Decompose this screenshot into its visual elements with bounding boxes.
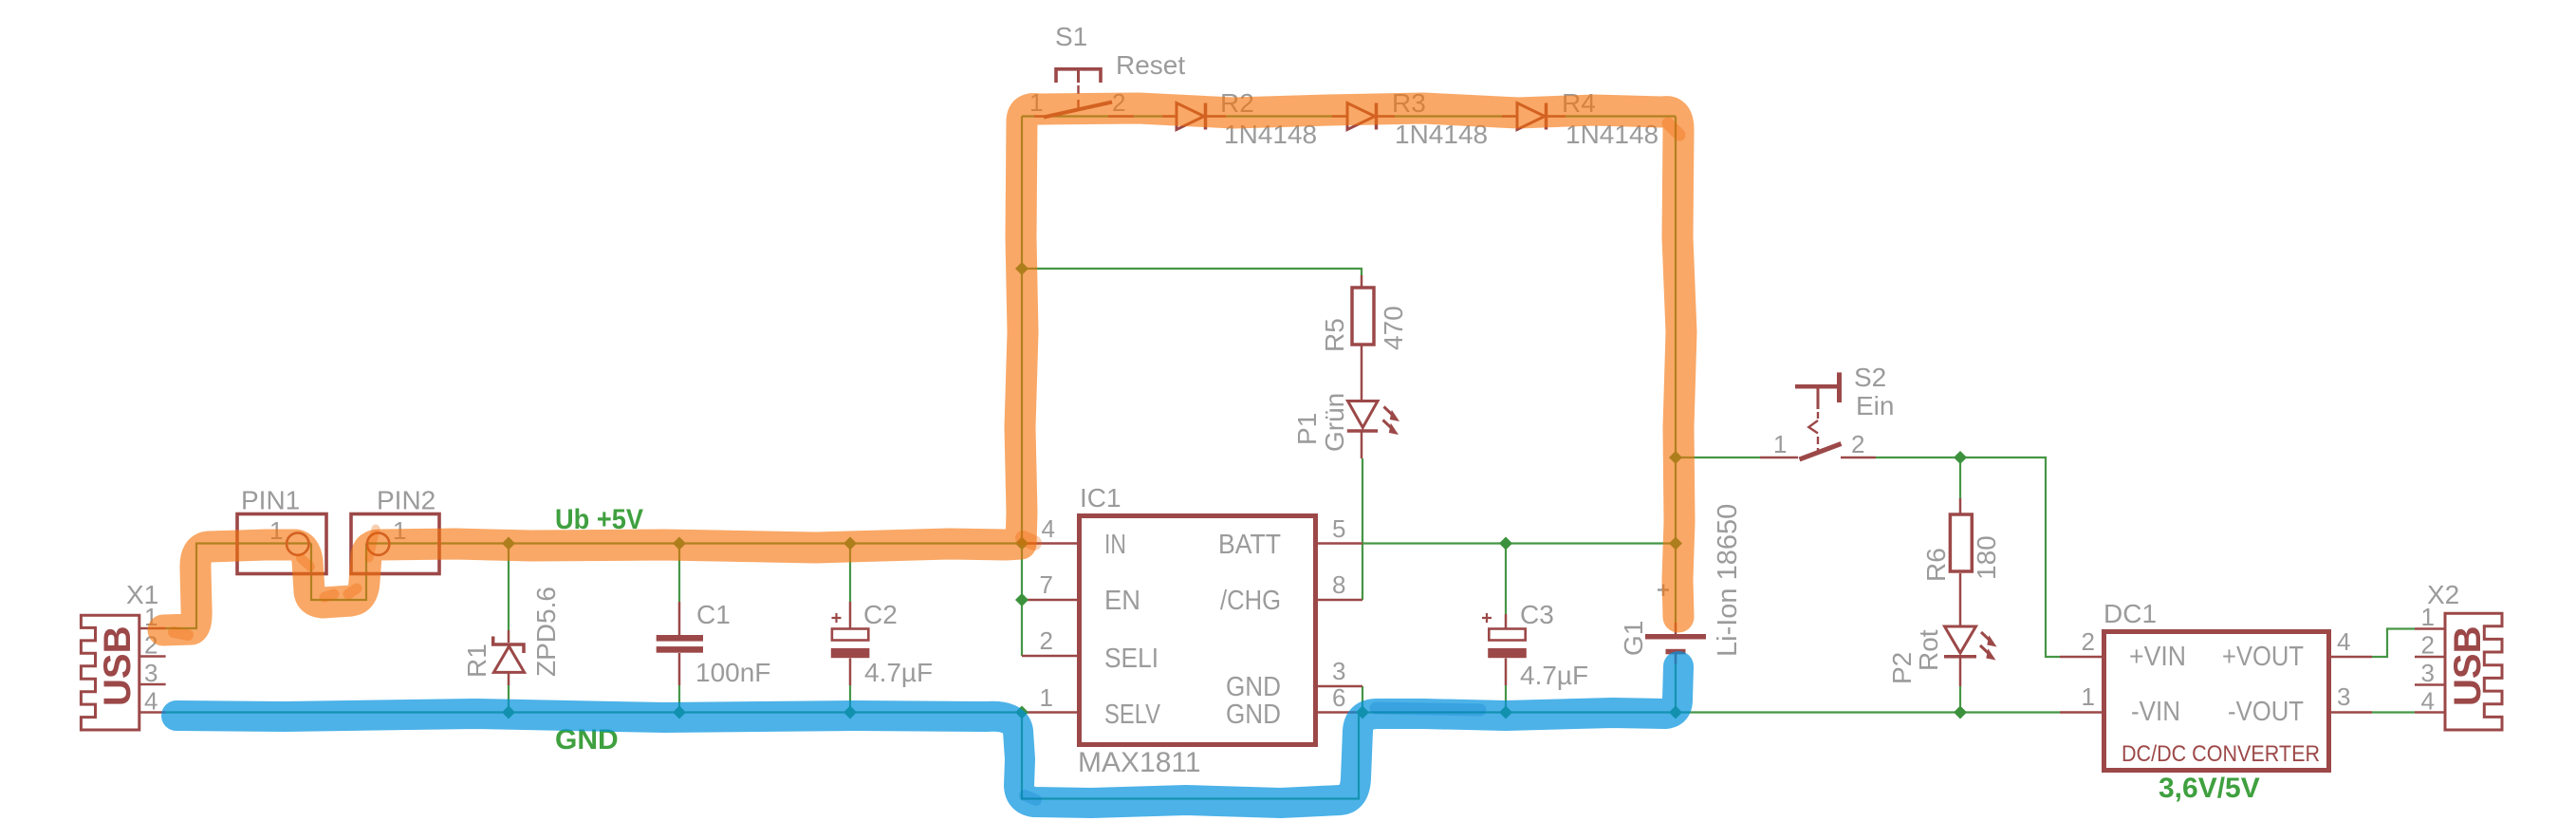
svg-text:-VOUT: -VOUT [2228, 697, 2304, 727]
svg-text:1: 1 [2421, 603, 2435, 631]
svg-text:7: 7 [1040, 570, 1053, 599]
svg-text:4.7µF: 4.7µF [1520, 661, 1588, 690]
svg-text:Reset: Reset [1116, 50, 1185, 80]
svg-text:BATT: BATT [1218, 530, 1281, 560]
svg-text:8: 8 [1332, 570, 1345, 599]
svg-text:GND: GND [1226, 672, 1281, 702]
svg-text:USB: USB [2447, 626, 2489, 706]
svg-text:R6: R6 [1921, 548, 1951, 582]
svg-text:3: 3 [2421, 659, 2435, 687]
svg-text:/CHG: /CHG [1220, 586, 1281, 616]
svg-text:3: 3 [1332, 657, 1345, 685]
svg-text:C2: C2 [863, 600, 898, 629]
svg-text:MAX1811: MAX1811 [1078, 747, 1201, 778]
svg-text:2: 2 [2082, 627, 2095, 656]
svg-text:100nF: 100nF [695, 658, 770, 687]
svg-text:S1: S1 [1055, 22, 1087, 51]
svg-text:-VIN: -VIN [2131, 697, 2180, 727]
svg-text:ZPD5.6: ZPD5.6 [531, 587, 561, 677]
svg-text:SELI: SELI [1104, 644, 1158, 674]
svg-text:PIN2: PIN2 [377, 486, 436, 515]
svg-text:1: 1 [1040, 683, 1053, 712]
svg-text:180: 180 [1972, 535, 2001, 580]
svg-text:4: 4 [2421, 687, 2435, 716]
svg-text:P2: P2 [1887, 652, 1917, 684]
svg-text:USB: USB [97, 626, 139, 706]
svg-text:DC1: DC1 [2103, 599, 2157, 628]
svg-text:Li-Ion 18650: Li-Ion 18650 [1713, 504, 1743, 657]
svg-text:3: 3 [144, 659, 158, 687]
svg-text:G1: G1 [1619, 621, 1648, 656]
svg-text:C3: C3 [1520, 600, 1554, 629]
svg-text:6: 6 [1332, 683, 1345, 712]
svg-text:R5: R5 [1320, 318, 1349, 352]
svg-text:+VIN: +VIN [2129, 642, 2186, 672]
svg-text:4: 4 [144, 687, 158, 716]
svg-text:1: 1 [1773, 430, 1787, 458]
svg-text:GND: GND [1226, 700, 1281, 730]
svg-text:Grün: Grün [1320, 393, 1349, 452]
svg-text:Rot: Rot [1914, 629, 1943, 671]
svg-text:4.7µF: 4.7µF [864, 658, 933, 687]
svg-text:1: 1 [2082, 682, 2095, 711]
svg-text:R1: R1 [462, 644, 491, 678]
svg-text:EN: EN [1104, 586, 1140, 616]
svg-text:DC/DC CONVERTER: DC/DC CONVERTER [2122, 741, 2320, 767]
svg-text:3: 3 [2337, 682, 2350, 711]
svg-text:4: 4 [2337, 627, 2350, 656]
svg-text:IN: IN [1104, 530, 1126, 560]
svg-text:+VOUT: +VOUT [2222, 642, 2304, 672]
svg-text:IC1: IC1 [1080, 483, 1121, 513]
svg-text:2: 2 [2421, 631, 2435, 660]
svg-text:2: 2 [1040, 626, 1053, 655]
svg-text:5: 5 [1332, 514, 1345, 543]
svg-text:C1: C1 [696, 600, 731, 629]
svg-text:3,6V/5V: 3,6V/5V [2159, 773, 2260, 804]
svg-text:SELV: SELV [1104, 700, 1161, 730]
svg-text:PIN1: PIN1 [241, 486, 300, 515]
svg-text:P1: P1 [1292, 413, 1322, 445]
svg-text:4: 4 [1042, 514, 1055, 543]
svg-text:S2: S2 [1854, 363, 1886, 392]
svg-text:Ein: Ein [1856, 391, 1894, 420]
svg-text:2: 2 [1851, 430, 1864, 458]
svg-text:470: 470 [1379, 306, 1408, 350]
